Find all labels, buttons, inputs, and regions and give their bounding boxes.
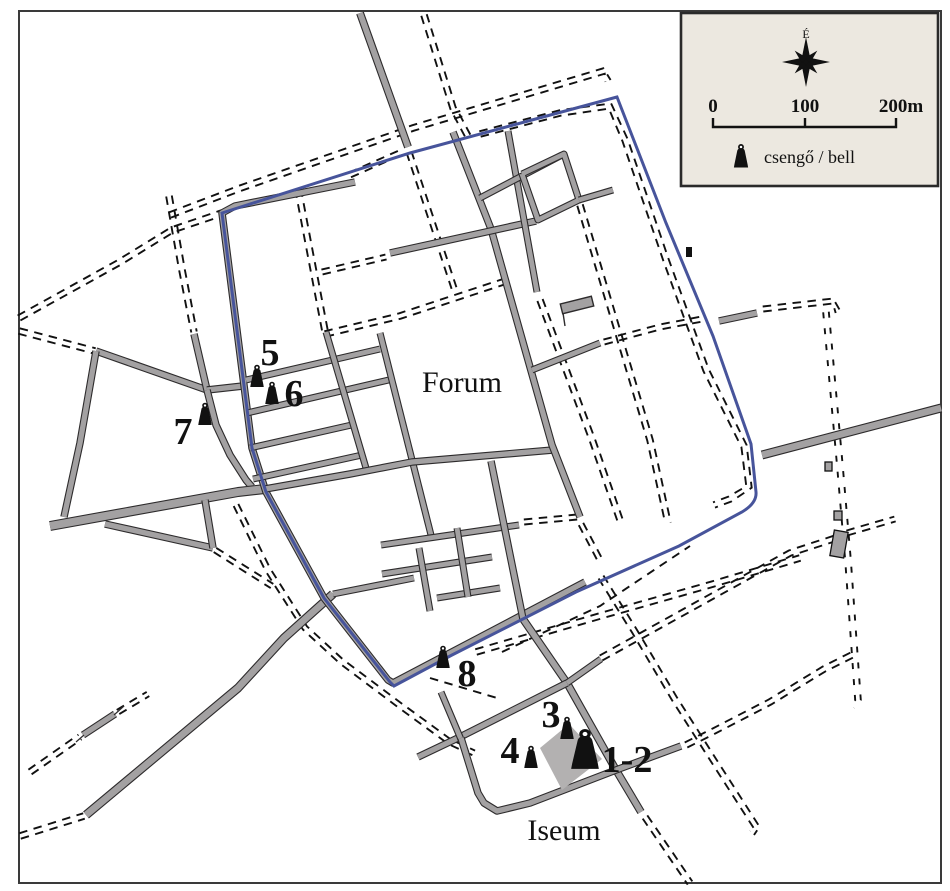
svg-text:6: 6 — [285, 373, 304, 415]
svg-text:5: 5 — [261, 332, 280, 374]
svg-text:100: 100 — [791, 96, 820, 117]
svg-text:3: 3 — [542, 694, 561, 736]
svg-text:200m: 200m — [879, 96, 924, 117]
svg-text:4: 4 — [501, 730, 520, 772]
svg-text:csengő / bell: csengő / bell — [764, 147, 855, 167]
svg-text:1-2: 1-2 — [602, 739, 653, 781]
svg-text:7: 7 — [174, 411, 193, 453]
svg-text:Iseum: Iseum — [527, 814, 600, 847]
svg-text:8: 8 — [458, 653, 477, 695]
svg-text:0: 0 — [708, 96, 718, 117]
svg-text:Forum: Forum — [422, 366, 502, 399]
svg-text:É: É — [802, 27, 809, 41]
